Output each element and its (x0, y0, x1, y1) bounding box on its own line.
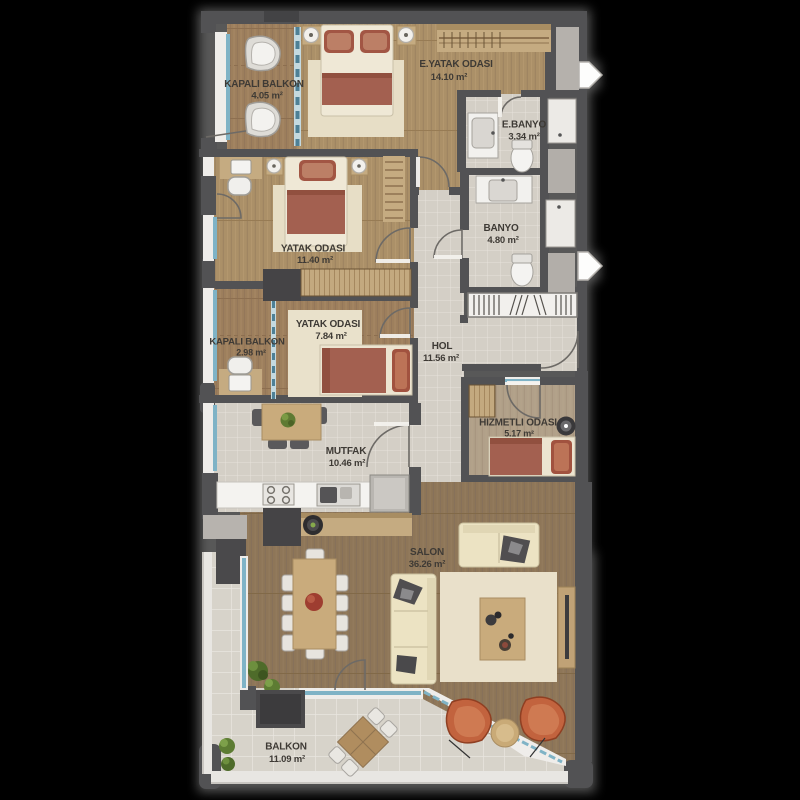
svg-text:BANYO: BANYO (483, 223, 519, 234)
svg-text:YATAK ODASI: YATAK ODASI (281, 244, 346, 255)
svg-text:SALON: SALON (410, 547, 444, 558)
svg-text:14.10 m²: 14.10 m² (431, 72, 467, 83)
svg-text:YATAK ODASI: YATAK ODASI (296, 319, 361, 330)
svg-text:11.09 m²: 11.09 m² (269, 754, 305, 765)
svg-text:4.80 m²: 4.80 m² (487, 235, 518, 246)
svg-text:KAPALI BALKON: KAPALI BALKON (209, 337, 285, 348)
svg-text:10.46 m²: 10.46 m² (329, 458, 365, 469)
svg-text:HIZMETLI ODASI: HIZMETLI ODASI (479, 418, 557, 429)
svg-text:HOL: HOL (432, 341, 453, 352)
svg-text:11.56 m²: 11.56 m² (423, 353, 459, 364)
svg-text:3.34 m²: 3.34 m² (508, 132, 539, 143)
svg-text:KAPALI BALKON: KAPALI BALKON (224, 79, 303, 90)
svg-text:5.17 m²: 5.17 m² (504, 429, 534, 439)
svg-text:MUTFAK: MUTFAK (326, 446, 367, 457)
svg-text:2.98 m²: 2.98 m² (236, 348, 266, 358)
svg-text:7.84 m²: 7.84 m² (315, 331, 346, 342)
svg-text:BALKON: BALKON (265, 742, 307, 753)
svg-text:E.BANYO: E.BANYO (502, 120, 547, 131)
svg-text:4.05 m²: 4.05 m² (251, 91, 282, 102)
svg-text:36.26 m²: 36.26 m² (409, 559, 445, 570)
svg-text:11.40 m²: 11.40 m² (297, 255, 333, 266)
svg-text:E.YATAK ODASI: E.YATAK ODASI (419, 59, 493, 70)
